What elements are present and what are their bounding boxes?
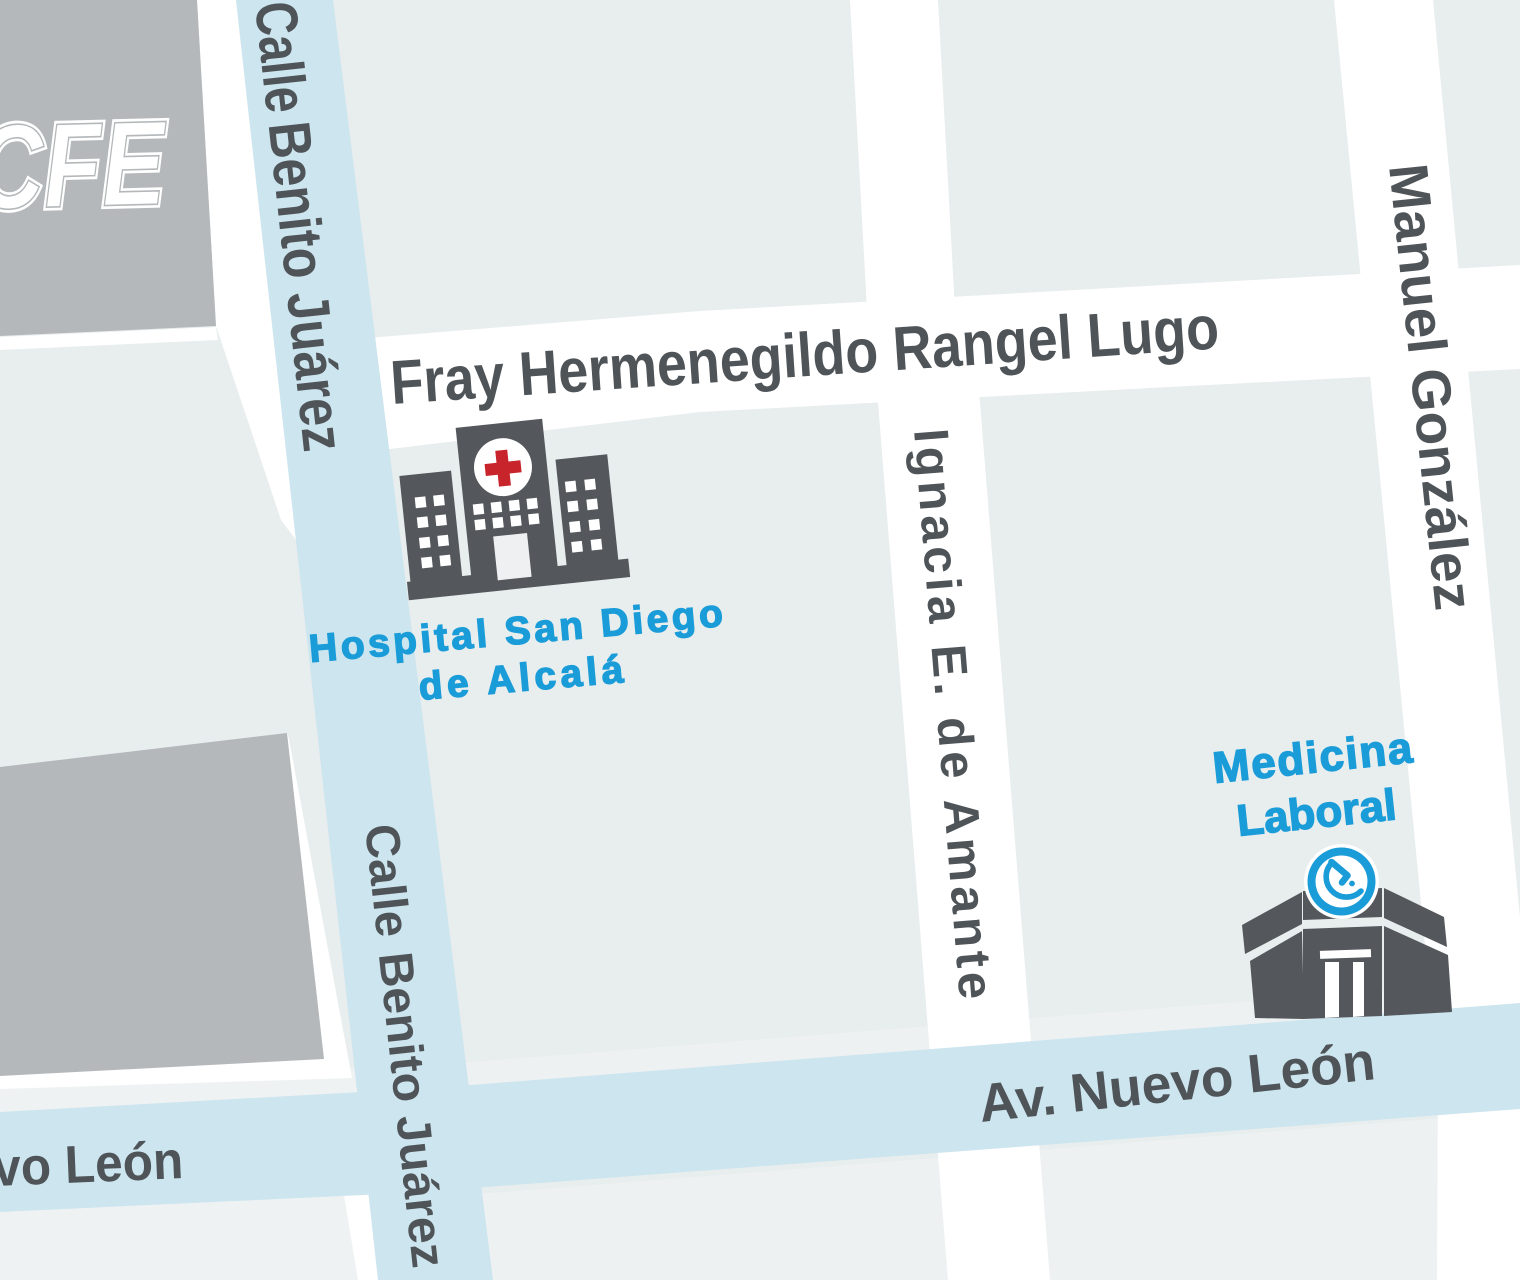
svg-text:Calle: Calle: [242, 0, 320, 116]
svg-text:CFE: CFE: [0, 96, 170, 235]
svg-text:vo León: vo León: [0, 1131, 184, 1198]
